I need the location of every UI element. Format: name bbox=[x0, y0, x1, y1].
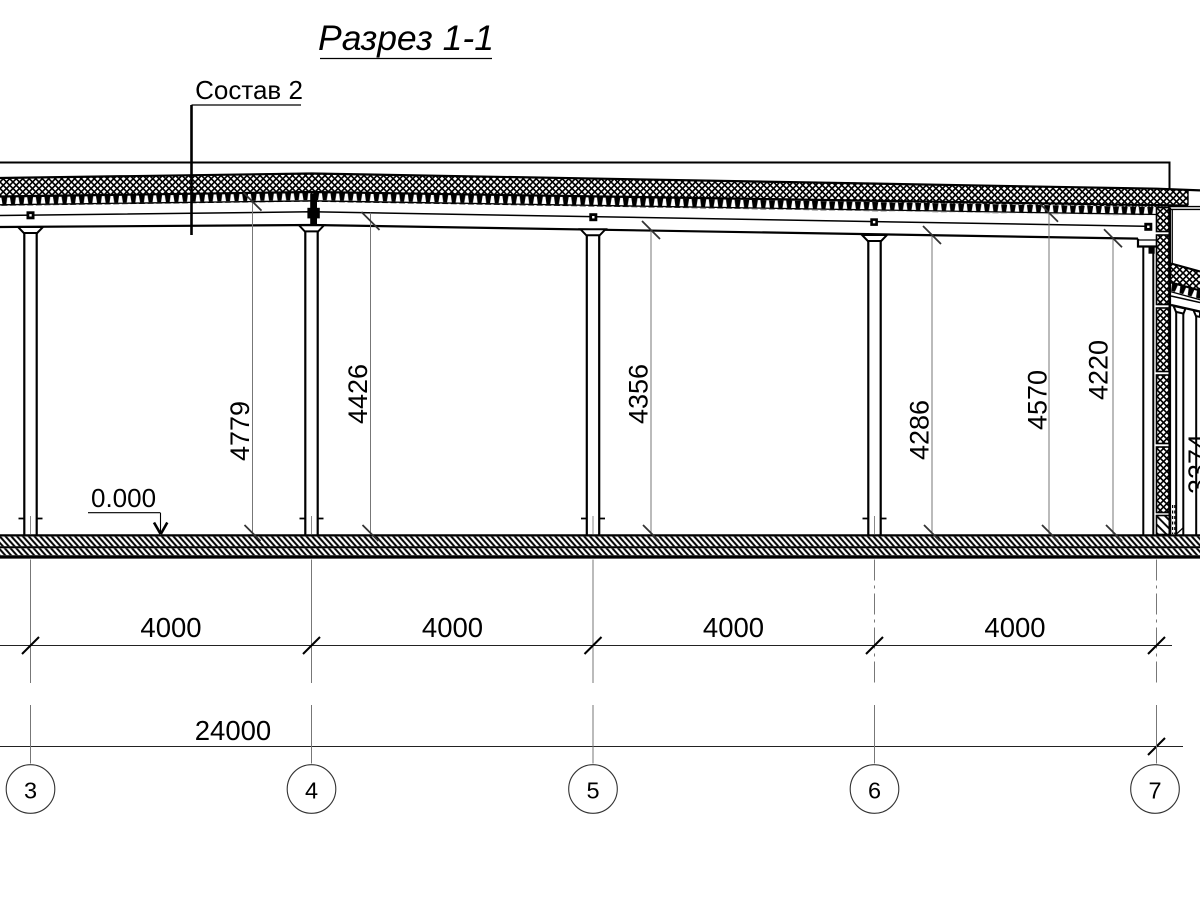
svg-text:4000: 4000 bbox=[703, 612, 764, 643]
svg-text:Состав 2: Состав 2 bbox=[195, 75, 303, 105]
svg-text:4220: 4220 bbox=[1084, 340, 1114, 400]
svg-text:3374: 3374 bbox=[1183, 434, 1200, 494]
svg-text:4: 4 bbox=[305, 778, 318, 804]
svg-text:4779: 4779 bbox=[225, 401, 255, 461]
svg-text:4286: 4286 bbox=[905, 400, 935, 460]
svg-text:4356: 4356 bbox=[624, 364, 654, 424]
svg-text:4426: 4426 bbox=[343, 364, 373, 424]
svg-text:4000: 4000 bbox=[984, 612, 1045, 643]
svg-text:5: 5 bbox=[586, 778, 599, 804]
svg-text:4570: 4570 bbox=[1023, 370, 1053, 430]
svg-text:3: 3 bbox=[24, 778, 37, 804]
svg-text:4000: 4000 bbox=[140, 612, 201, 643]
svg-text:7: 7 bbox=[1148, 778, 1161, 804]
svg-text:Разрез 1-1: Разрез 1-1 bbox=[318, 18, 494, 58]
svg-text:4000: 4000 bbox=[422, 612, 483, 643]
svg-text:0.000: 0.000 bbox=[91, 483, 156, 513]
svg-text:6: 6 bbox=[868, 778, 881, 804]
svg-text:24000: 24000 bbox=[195, 715, 271, 746]
